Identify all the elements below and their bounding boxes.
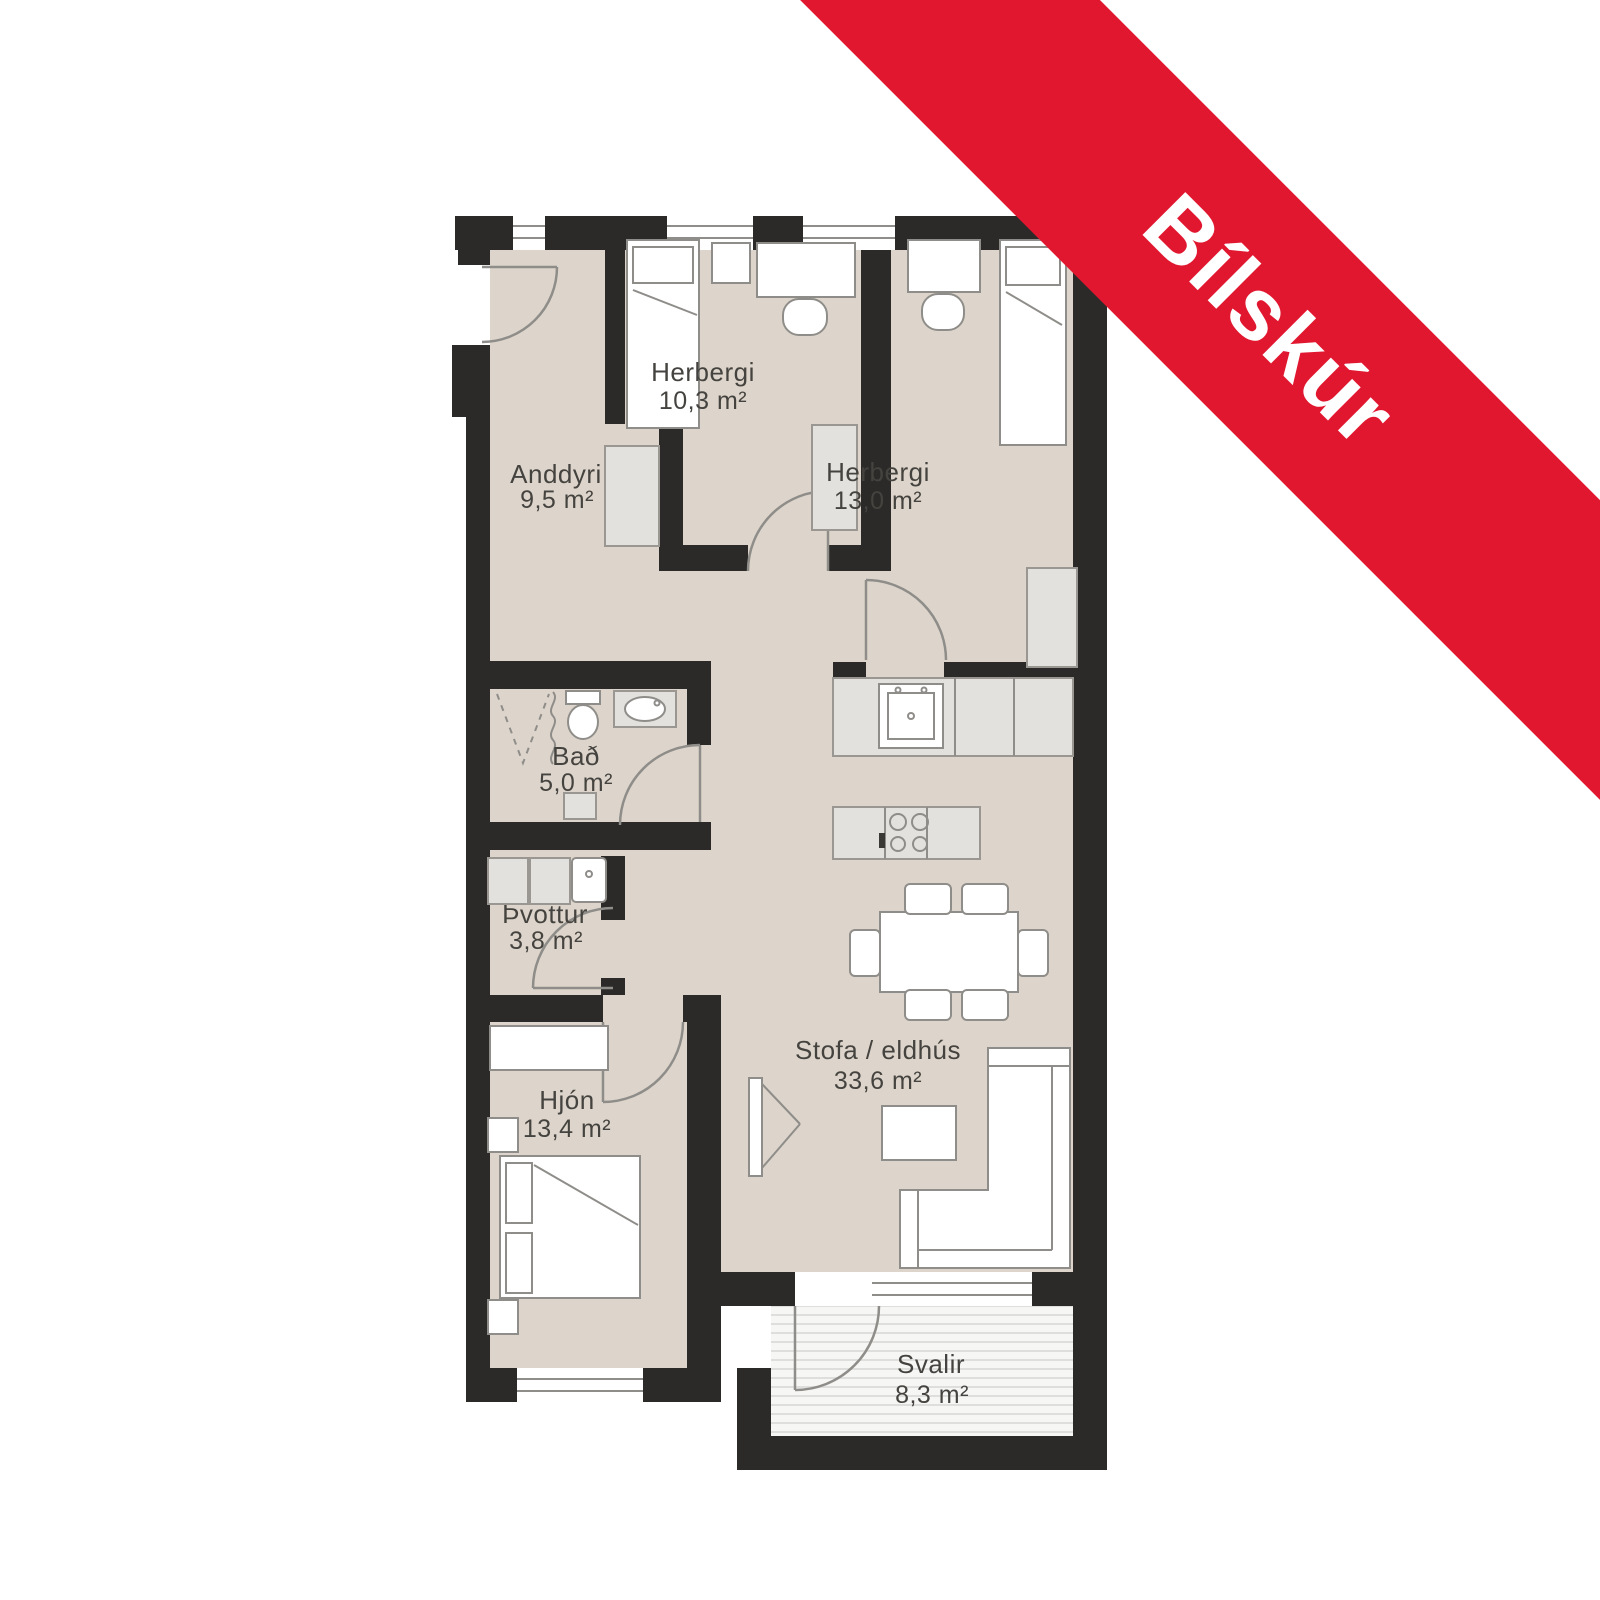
balcony-frame-bottom [737,1436,1107,1470]
area-hjon: 13,4 m² [523,1115,611,1143]
desk-herbergi2 [908,240,980,292]
wall-herbergi1-herbergi2 [861,250,891,571]
label-stofa: Stofa / eldhús [795,1035,961,1065]
wardrobe-herbergi2 [1027,568,1077,667]
toilet [566,691,600,739]
area-bad: 5,0 m² [539,769,613,797]
wall-bad-top [466,661,711,689]
nightstand-bottom [488,1300,518,1334]
wall-right [1073,250,1107,1470]
wall-herbergi1-hall-right [828,545,861,571]
chair-herbergi2 [922,294,964,330]
washer [488,858,528,904]
wall-hjon-top-left [466,995,603,1022]
shelf-herbergi1 [712,243,750,283]
label-herbergi-1: Herbergi [651,357,755,387]
window-hjon [517,1368,643,1402]
wall-anddyri-herbergi1 [605,250,625,424]
area-herbergi-1: 10,3 m² [659,387,747,415]
floorplan-drawing: Anddyri 9,5 m² Herbergi 10,3 m² Herbergi… [0,0,1600,1600]
laundry-sink [572,858,606,902]
nightstand-top [488,1118,518,1152]
kitchen-island [833,807,980,859]
wall-kitchen-left [833,662,866,678]
area-stofa: 33,6 m² [834,1067,922,1095]
wall-bottom-living-left [721,1272,795,1306]
balcony-door-opening [795,1272,872,1306]
wall-herbergi1-hall-left [659,545,748,571]
wall-hjon-living [687,1022,721,1402]
floorplan-page: Anddyri 9,5 m² Herbergi 10,3 m² Herbergi… [0,0,1600,1600]
label-herbergi-2: Herbergi [826,457,930,487]
area-herbergi-2: 13,0 m² [834,487,922,515]
dryer [530,858,570,904]
bed-hjon [500,1156,640,1298]
area-svalir: 8,3 m² [895,1381,969,1409]
window-living [872,1272,1032,1306]
wall-bad-right-upper [687,689,711,745]
label-svalir: Svalir [897,1349,965,1379]
chair-herbergi1 [783,299,827,335]
area-anddyri: 9,5 m² [520,486,594,514]
wall-bad-bottom [466,822,711,850]
bed-herbergi2 [1000,240,1066,445]
wall-bottom-living-right [1032,1272,1073,1306]
wardrobe-hjon [490,1026,608,1070]
wall-hjon-top-right [683,995,721,1022]
wall-thvottur-right-lower [601,978,625,995]
wall-left-block [452,345,490,417]
wall-left-upper [458,250,490,265]
wardrobe-anddyri [605,446,659,546]
wall-left [466,417,490,1368]
label-bad: Bað [552,741,600,771]
label-anddyri: Anddyri [510,459,602,489]
label-thvottur: Þvottur [502,899,588,929]
label-hjon: Hjón [539,1085,594,1115]
coffee-table [882,1106,956,1160]
wall-anddyri-stub [659,424,683,545]
window-top-small [513,216,545,250]
bath-sink [614,691,676,727]
kitchen-counter [833,678,1073,756]
desk-herbergi1 [757,243,855,297]
area-thvottur: 3,8 m² [509,927,583,955]
balcony-frame-left [737,1368,771,1470]
